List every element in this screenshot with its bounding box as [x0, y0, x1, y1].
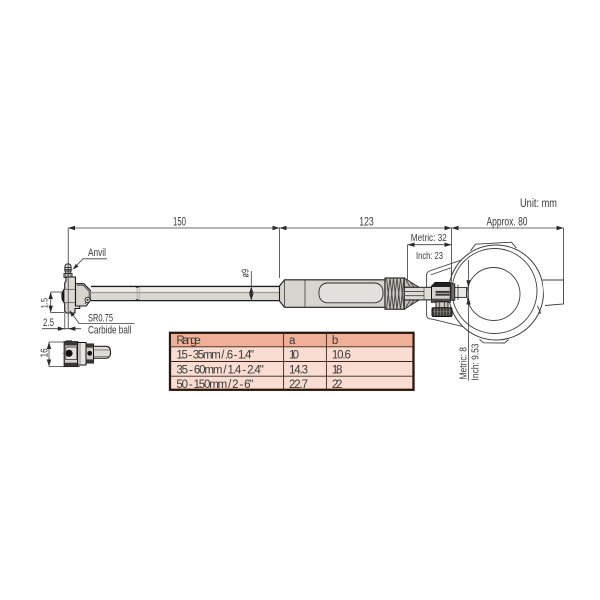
svg-text:Inch: 23: Inch: 23: [416, 250, 443, 262]
svg-text:22.7: 22.7: [289, 379, 308, 391]
svg-text:Approx. 80: Approx. 80: [487, 215, 528, 229]
svg-text:50 - 150mm / 2 - 6": 50 - 150mm / 2 - 6": [176, 379, 253, 391]
svg-text:ø9: ø9: [240, 269, 252, 278]
svg-text:15 - 35mm / .6 - 1.4": 15 - 35mm / .6 - 1.4": [176, 350, 254, 362]
svg-text:Carbide ball: Carbide ball: [88, 325, 132, 337]
svg-text:35 - 60mm / 1.4 - 2.4": 35 - 60mm / 1.4 - 2.4": [176, 364, 263, 376]
svg-text:Unit: mm: Unit: mm: [520, 198, 557, 210]
svg-text:Anvil: Anvil: [88, 247, 106, 259]
svg-text:16: 16: [40, 348, 51, 358]
svg-text:22: 22: [332, 379, 343, 391]
svg-text:SR0.75: SR0.75: [88, 313, 113, 325]
svg-text:Metric: 8: Metric: 8: [457, 347, 469, 380]
svg-text:2.5: 2.5: [43, 317, 54, 329]
svg-text:123: 123: [359, 215, 374, 229]
svg-text:14.3: 14.3: [289, 364, 308, 376]
svg-text:b: b: [332, 335, 338, 347]
svg-text:Metric: 32: Metric: 32: [411, 232, 447, 244]
svg-text:10.6: 10.6: [332, 350, 351, 362]
svg-text:18: 18: [332, 364, 343, 376]
svg-text:1.5: 1.5: [40, 298, 51, 308]
svg-text:150: 150: [173, 215, 186, 229]
svg-text:Range: Range: [176, 335, 200, 347]
svg-text:Inch: 9.53: Inch: 9.53: [469, 343, 481, 380]
svg-text:a: a: [289, 335, 296, 347]
svg-text:10: 10: [289, 350, 299, 362]
